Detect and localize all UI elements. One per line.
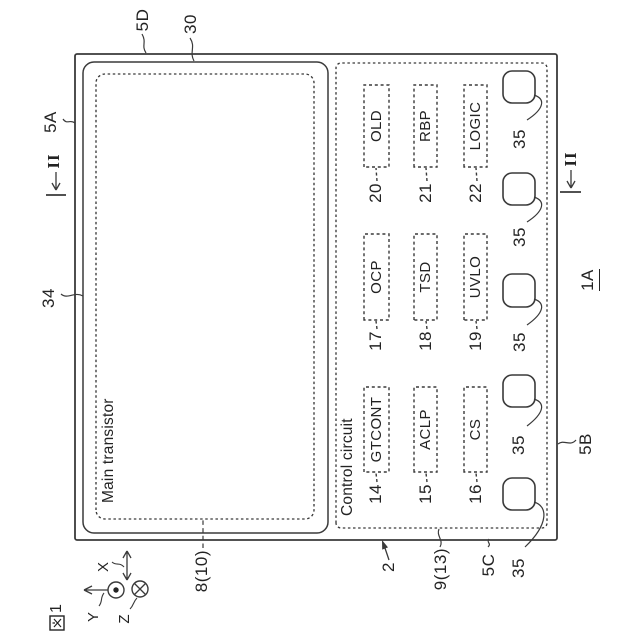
ref-35-pad1: 35 [509,550,529,586]
section-label-top: II [43,148,65,174]
ref-35-pad2: 35 [509,428,529,462]
axis-z-cross [135,584,146,595]
ref-21: 21 [416,183,436,215]
ref-20: 20 [366,183,386,215]
ref-15: 15 [416,484,436,516]
block-uvlo-label: UVLO [464,234,487,320]
ref-1a: 1A [578,263,600,297]
ref-14: 14 [366,484,386,516]
ref-5b: 5B [576,428,596,460]
figure-number-digit: 1 [48,604,66,613]
axis-z-squiggle [130,598,137,609]
ref-19: 19 [466,331,486,363]
control-circuit-title: Control circuit [338,386,358,516]
connector-17 [376,321,377,329]
axis-y-arrow [84,586,108,594]
pad-4 [503,173,535,205]
leader-2-line [385,547,389,560]
axis-z-label: Z [115,610,133,628]
ref-18: 18 [416,331,436,363]
ref-5c: 5C [479,548,499,582]
ref-30: 30 [181,8,201,40]
leader-9-13 [438,529,441,547]
ref-8-10: 8(10) [192,550,212,602]
leader-34 [61,294,83,296]
leader-30 [190,38,194,61]
main-transistor-region [96,74,314,519]
connector-20 [376,168,377,181]
ref-9-13: 9(13) [431,548,451,600]
pad-1 [503,478,535,510]
section-arrow-top [52,172,60,190]
section-arrow-bottom [567,170,575,188]
kanji-zu-glyph [48,614,66,631]
block-rbp-label: RBP [414,85,437,167]
block-old-label: OLD [364,85,389,167]
figure-number-label: 1 [47,589,67,631]
section-label-bottom: II [560,146,582,172]
connector-15 [426,473,427,482]
patent-figure-page: 1 Y X Z 5A 34 II 5D 30 5B 5C 2 8(10) 9(1… [0,0,640,640]
block-tsd-label: TSD [414,234,437,320]
block-ocp-label: OCP [364,234,389,320]
block-gtcont-label: GTCONT [364,387,389,472]
ref-17: 17 [366,331,386,363]
block-aclp-label: ACLP [414,387,437,472]
connector-19 [476,321,477,329]
axis-x-arrow [123,551,131,580]
leader-5b [558,440,576,444]
main-transistor-title: Main transistor [99,363,119,503]
ref-5a: 5A [41,107,61,137]
connector-14 [376,473,377,482]
block-cs-label: CS [464,387,487,472]
leader-2-arrowhead [382,540,388,550]
ref-16: 16 [466,484,486,516]
connector-21 [426,168,427,181]
leader-5d [142,34,146,53]
axis-x-squiggle [112,562,124,567]
figure-rotated-canvas: 1 Y X Z 5A 34 II 5D 30 5B 5C 2 8(10) 9(1… [0,0,640,640]
axis-y-label: Y [84,608,102,626]
pad-2 [503,375,535,407]
axis-out-of-plane-dot [113,587,118,592]
outline-30-rect [83,62,328,533]
figure-linework [0,0,640,640]
ref-35-pad5: 35 [510,122,530,156]
ref-22: 22 [466,183,486,215]
connector-16 [476,473,477,482]
ref-35-pad3: 35 [510,325,530,359]
ref-35-pad4: 35 [510,220,530,254]
leader-5a [63,119,75,123]
connector-18 [426,321,427,329]
ref-5d: 5D [133,4,153,36]
connector-22 [476,168,477,181]
pad-3 [503,274,535,307]
pad-5 [503,71,535,103]
axis-x-label: X [94,558,112,576]
device-ref-text: 1A [578,269,600,291]
ref-34: 34 [39,283,59,313]
ref-2: 2 [379,562,399,584]
block-logic-label: LOGIC [464,85,487,167]
axis-y-squiggle [99,593,104,606]
